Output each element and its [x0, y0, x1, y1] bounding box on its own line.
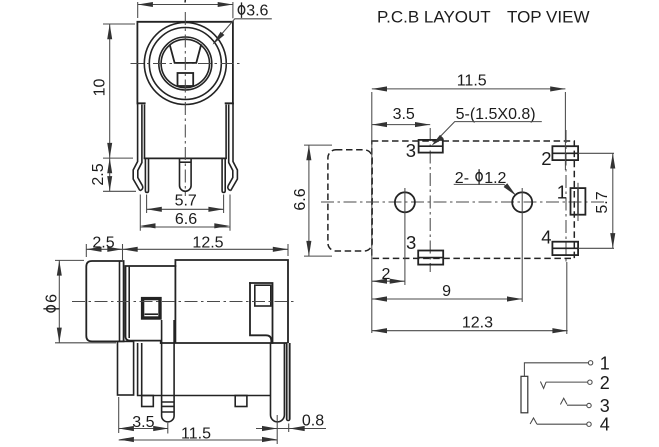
svg-text:3.6: 3.6: [246, 2, 268, 19]
svg-text:11.5: 11.5: [457, 73, 487, 90]
svg-text:5-(1.5X0.8): 5-(1.5X0.8): [456, 106, 536, 123]
svg-text:7: 7: [182, 0, 191, 7]
svg-text:3: 3: [406, 140, 416, 161]
svg-text:2: 2: [541, 148, 551, 169]
svg-text:4: 4: [541, 226, 551, 247]
svg-text:P.C.B LAYOUT: P.C.B LAYOUT: [377, 7, 491, 26]
svg-text:12.5: 12.5: [192, 234, 223, 251]
svg-text:2: 2: [382, 266, 391, 283]
svg-text:11.5: 11.5: [181, 425, 211, 442]
svg-text:2: 2: [600, 373, 610, 393]
svg-text:5.7: 5.7: [594, 191, 611, 213]
svg-text:TOP VIEW: TOP VIEW: [507, 7, 590, 26]
svg-text:3: 3: [406, 232, 416, 253]
svg-text:12.3: 12.3: [462, 315, 493, 332]
svg-text:3: 3: [600, 396, 610, 416]
svg-text:9: 9: [442, 283, 451, 300]
svg-text:2.5: 2.5: [92, 234, 114, 251]
svg-text:6.6: 6.6: [292, 188, 309, 210]
svg-text:5.7: 5.7: [175, 193, 197, 210]
svg-text:3.5: 3.5: [132, 414, 154, 431]
svg-text:6.6: 6.6: [175, 211, 197, 228]
svg-text:2.5: 2.5: [90, 163, 107, 185]
svg-text:3.5: 3.5: [393, 106, 415, 123]
svg-text:6: 6: [44, 294, 61, 303]
svg-text:1: 1: [557, 182, 567, 203]
svg-text:1: 1: [600, 353, 610, 373]
svg-text:4: 4: [600, 415, 610, 435]
svg-text:0.8: 0.8: [302, 412, 324, 429]
svg-text:10: 10: [92, 79, 109, 97]
